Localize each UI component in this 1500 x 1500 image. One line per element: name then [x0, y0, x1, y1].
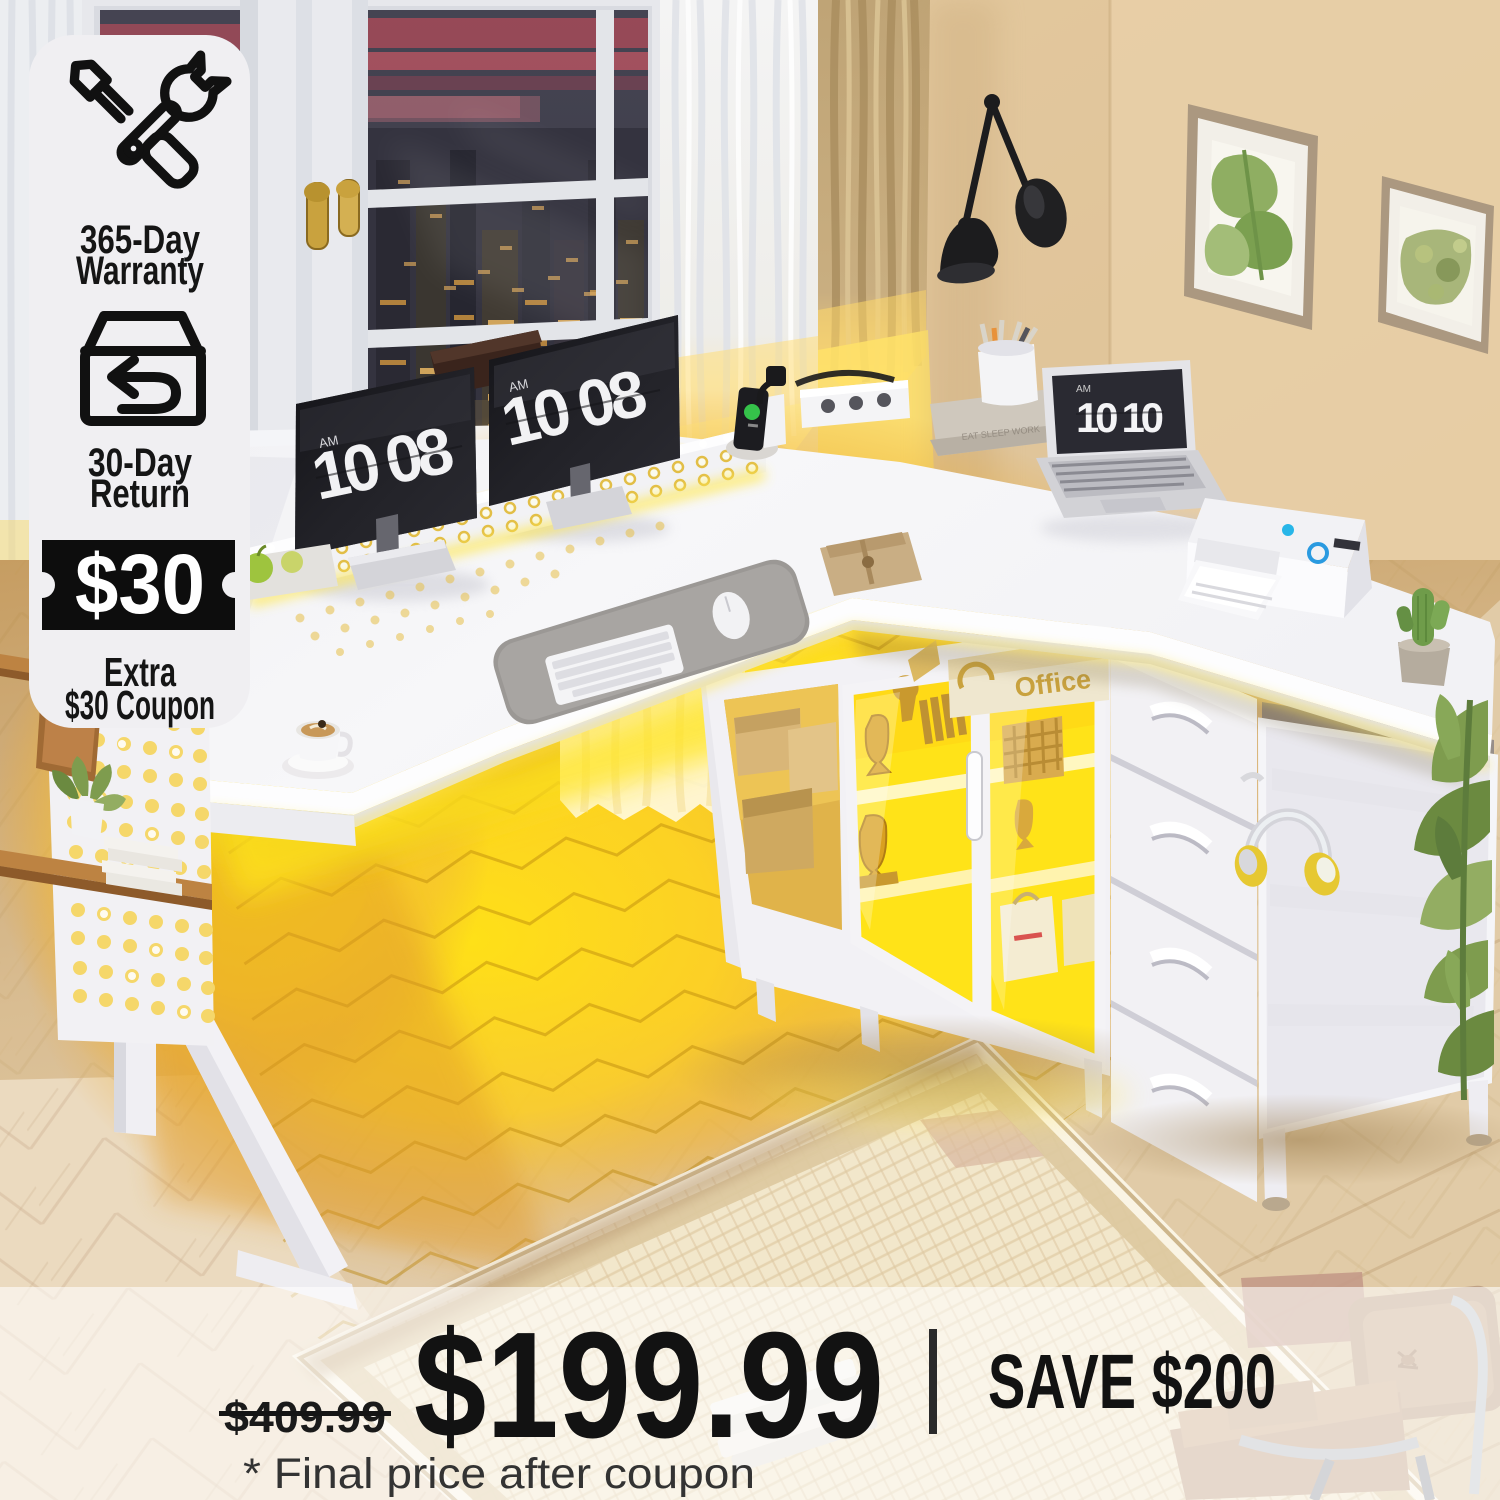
svg-text:$409.99: $409.99	[224, 1393, 386, 1442]
svg-text:Return: Return	[90, 472, 190, 516]
svg-text:$199.99: $199.99	[414, 1300, 884, 1469]
svg-text:SAVE $200: SAVE $200	[988, 1339, 1276, 1425]
svg-text:$30 Coupon: $30 Coupon	[65, 682, 215, 728]
svg-text:* Final price after coupon: * Final price after coupon	[243, 1450, 755, 1498]
svg-text:$30: $30	[75, 537, 205, 631]
svg-text:AM: AM	[1076, 384, 1091, 395]
svg-text:Warranty: Warranty	[76, 249, 205, 293]
svg-text:10 10: 10 10	[1076, 394, 1164, 441]
